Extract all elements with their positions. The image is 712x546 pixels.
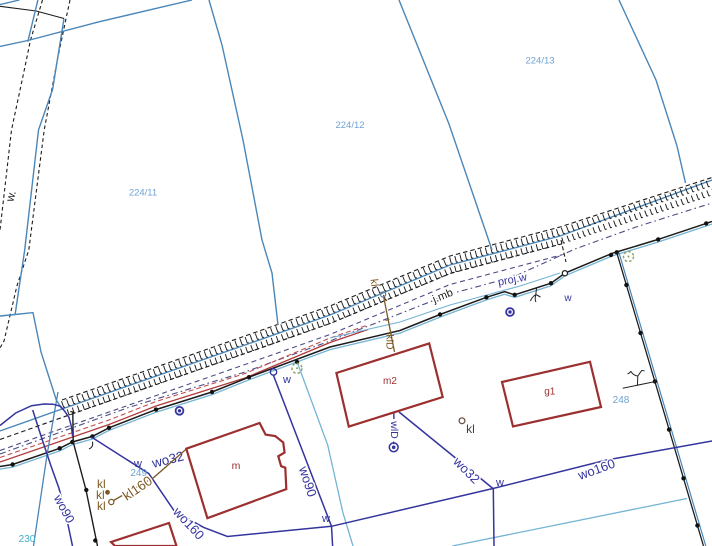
svg-text:248: 248 [613,395,630,406]
svg-text:klD: klD [384,334,396,350]
svg-text:230: 230 [19,534,36,545]
svg-text:kl: kl [466,422,475,436]
svg-text:w: w [495,477,504,489]
svg-text:kl: kl [368,278,381,287]
svg-text:m: m [232,460,241,472]
svg-text:224/11: 224/11 [129,188,157,199]
svg-text:m2: m2 [383,376,397,387]
svg-text:kl: kl [97,499,106,513]
svg-text:224/12: 224/12 [335,120,364,131]
svg-text:wlD: wlD [388,420,400,439]
svg-text:g1: g1 [544,387,556,398]
svg-text:w: w [282,374,291,386]
svg-text:224/13: 224/13 [525,56,554,67]
svg-text:w: w [563,293,572,304]
